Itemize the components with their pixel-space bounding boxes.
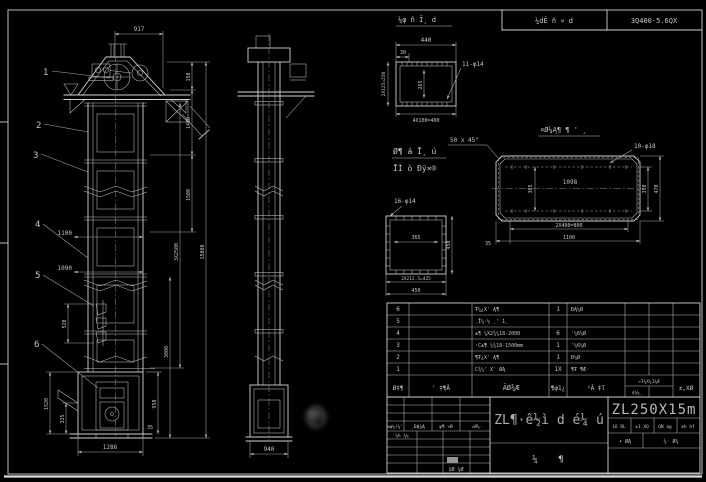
detail-long-flange: ¤Ø¼Ą¶ ¶ ' ¸ 365 1098 350 470 2X40	[485, 126, 664, 247]
bom-mat: ĐĄ¼Ø	[571, 306, 583, 313]
bom-header-name: ĂØ¾Æ	[503, 383, 521, 392]
dim-450-right: 450	[446, 240, 452, 249]
bom-desc: ¸Ī¼·½ ¸' 1¸	[475, 318, 508, 325]
detail-long-title: ¤Ø¼Ą¶ ¶ ' ¸	[540, 126, 586, 134]
dim-150: 150	[186, 72, 192, 81]
bom-mat: '¼6¼Ø	[571, 330, 586, 337]
dim-3x2500: 3X2500	[174, 243, 180, 261]
rev-note: ‡Ø ¼Ø	[448, 466, 463, 473]
dim-35-long: 35	[485, 241, 491, 247]
dim-2x125: 2X125=250	[381, 72, 387, 97]
detail-head-title: ¼φ ñ Ī¸ d	[398, 15, 436, 24]
tb-cell-1: 16 RL	[612, 424, 626, 430]
bom-qty: 1	[556, 354, 560, 361]
bom-mat: ¶Ŧ ¶Æ·	[571, 367, 589, 373]
dim-470: 470	[654, 184, 660, 193]
bom-header-weight: ¤Ŧ¼X¼1¾Æ	[638, 379, 660, 385]
bom-desc: ±¶ ¼X2¾¼18-2000	[475, 331, 520, 337]
dim-325: 325	[60, 414, 66, 423]
bom-desc: ¶Ŧ¿X' Ą¶	[475, 355, 499, 361]
dim-520: 520	[62, 319, 68, 328]
boot-section	[58, 372, 152, 438]
tb-cell-4: ±h hf	[681, 424, 695, 430]
dim-1098: 1098	[563, 179, 578, 186]
dim-1480: 1480	[186, 117, 192, 129]
tb-cell-2: ±1 XQ	[635, 424, 649, 430]
rev-header-3: φ¶ ×Ø	[439, 423, 453, 430]
dim-350: 350	[642, 184, 648, 193]
bom-mat: '¼6¼Ø	[571, 342, 586, 349]
bom-no: 3	[396, 342, 400, 349]
dim-1520: 1520	[44, 398, 50, 410]
balloon-1: 1	[43, 68, 48, 78]
dim-16-holes: 16-φ14	[394, 198, 416, 205]
balloon-2: 2	[36, 121, 41, 131]
tb-cell-3: QN ag	[658, 424, 672, 430]
bom-header-qty: ¶φ1¿	[551, 385, 565, 392]
dim-917: 917	[134, 26, 145, 33]
notes: Ø¶ á Ī¸ ú ĪÌ ò Đỹ×® 50 x 45°	[392, 137, 498, 173]
drawing-name-sub-2: ¶	[558, 455, 563, 465]
note-line-2: ĪÌ ò Đỹ×®	[393, 162, 437, 173]
bom-no: 6	[396, 306, 400, 313]
bom-header-material: ²Ă ‡T	[587, 385, 605, 392]
front-elevation	[58, 44, 210, 438]
dim-365-square: 365	[411, 235, 420, 241]
bom-desc: Ŧ¼¿X' Ą¶	[475, 307, 499, 313]
strip-right-label: 3Q400-5.6QX	[631, 17, 678, 25]
chamfer-note: 50 x 45°	[450, 137, 479, 144]
front-dimensions: 917 150 1480 1500 3X2500 3000 15000 950 …	[44, 26, 210, 456]
rev-header-4: »Ø¼·	[472, 423, 483, 430]
bom-mat: Đ¼Ø	[571, 354, 580, 361]
dim-11-holes: 11-φ14	[462, 61, 484, 68]
drawing-name: ZL¶·ê½ì d é¼ ú	[494, 413, 604, 428]
dim-2x400: 2X400=800	[555, 223, 582, 229]
dim-1090: 1090	[58, 265, 73, 272]
dim-1286: 1286	[103, 444, 118, 451]
dim-35: 35	[147, 425, 153, 431]
rev-highlight-cell	[447, 457, 458, 463]
bom-desc: C¾¼' X' ØĄ	[475, 366, 506, 373]
dim-440: 440	[421, 37, 432, 44]
dim-1100-long: 1100	[563, 235, 575, 241]
bom-header-no: Ø‡¶	[393, 385, 404, 392]
dim-940: 940	[264, 446, 275, 453]
bom-no: 5	[396, 318, 400, 325]
bom-header-code: ' ‡¶Ă	[432, 385, 450, 392]
bom-no: 2	[396, 354, 400, 361]
dim-1100: 1100	[58, 230, 73, 237]
rev-row-label: ¼h ¾¼	[395, 433, 409, 439]
note-line-1: Ø¶ á Ī¸ ú	[393, 146, 437, 156]
dim-2x212: 2X212.5=425	[401, 276, 431, 282]
balloon-6: 6	[34, 340, 39, 350]
bom-qty: 6	[556, 330, 560, 337]
bom-no: 1	[396, 366, 400, 373]
dim-3000: 3000	[164, 346, 170, 358]
dim-950: 950	[152, 399, 158, 408]
tb-mid-2: ¼· Ø¼	[663, 438, 678, 445]
dim-365-long: 365	[528, 184, 534, 193]
bom-qty: 1X	[554, 366, 562, 373]
dim-10-holes: 10-φ18	[634, 143, 656, 150]
dim-30: 30	[400, 50, 406, 56]
side-elevation: 940	[238, 34, 314, 458]
dim-265: 265	[418, 80, 424, 89]
balloon-5: 5	[35, 271, 40, 281]
bom-qty: 1	[556, 342, 560, 349]
bom-qty: 1	[556, 306, 560, 313]
rev-header-1: ±φ¼(¼'	[387, 424, 403, 430]
bom-table: 6 Ŧ¼¿X' Ą¶ 1 ĐĄ¼Ø 5 ¸Ī¼·½ ¸' 1¸ 4 ±¶ ¼X2…	[387, 303, 700, 397]
title-strip: ¼dÊ ñ » d 3Q400-5.6QX	[502, 10, 702, 30]
dim-1500: 1500	[186, 189, 192, 201]
dim-4x100: 4X100=400	[412, 118, 439, 124]
detail-head-flange: ¼φ ñ Ī¸ d 440 30 265 2X125=250 4X10	[381, 15, 484, 124]
bom-header-remarks: ±,XØ	[679, 385, 694, 392]
dim-450-bottom: 450	[411, 288, 420, 294]
smudge-artifact	[305, 405, 327, 429]
cad-viewport[interactable]: ¼dÊ ñ » d 3Q400-5.6QX	[0, 0, 706, 482]
tb-mid-1: • ØĄ	[619, 438, 632, 445]
bom-no: 4	[396, 330, 400, 337]
cad-drawing: ¼dÊ ñ » d 3Q400-5.6QX	[0, 0, 706, 482]
dim-15000: 15000	[200, 244, 206, 259]
bom-desc: ·C±¶ ¼¾18-1500mm	[475, 343, 523, 349]
balloon-3: 3	[33, 151, 38, 161]
bom-header-total: ¢¾¼¸	[632, 390, 643, 396]
balloon-4: 4	[35, 220, 40, 230]
bom-header: Ø‡¶ ' ‡¶Ă ĂØ¾Æ ¶φ1¿ ²Ă ‡T ¤Ŧ¼X¼1¾Æ ¢¾¼¸ …	[393, 379, 694, 396]
title-block: ±φ¼(¼' ¸ĐĄ¼Ą φ¶ ×Ø »Ø¼· ¼h ¾¼ ‡Ø ¼Ø ZL¶·…	[387, 397, 700, 473]
strip-left-label: ¼dÊ ñ » d	[535, 16, 573, 25]
drawing-frame	[0, 10, 702, 477]
drawing-number: ZL250X15m	[612, 402, 697, 418]
rev-header-2: ¸ĐĄ¼Ą	[411, 424, 425, 430]
drawing-name-sub-1: ¼	[532, 455, 537, 465]
detail-boot-flange: 16-φ14 365 450 2X212.5=425 450	[386, 198, 452, 296]
